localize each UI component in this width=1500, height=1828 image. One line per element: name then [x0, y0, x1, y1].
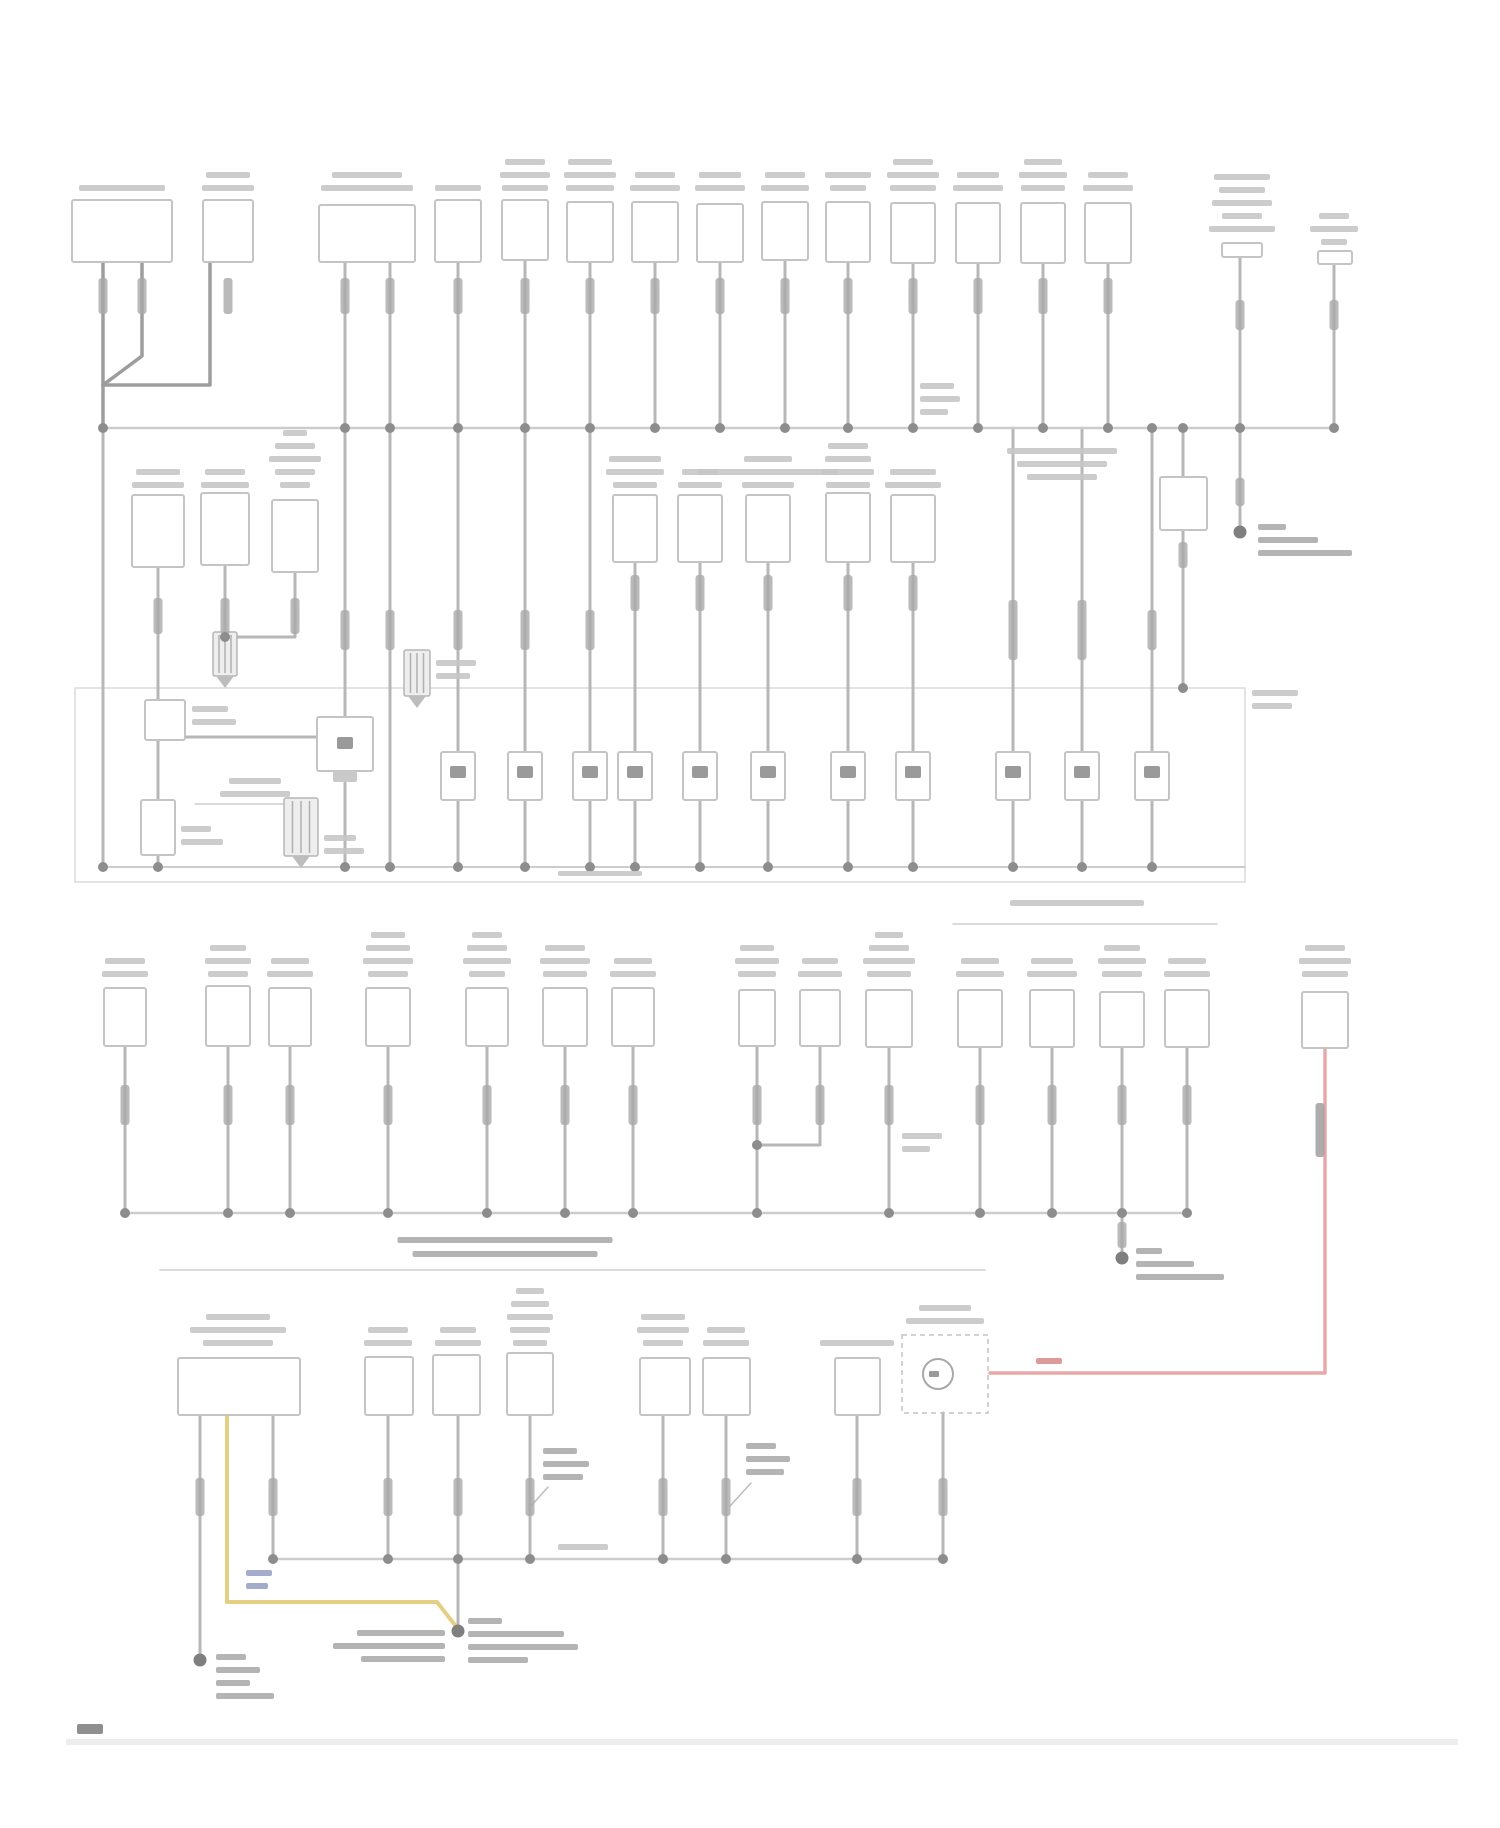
label-text-52-line-2 — [1136, 1274, 1224, 1280]
label-text-4-line-0 — [505, 159, 545, 165]
label-text-8-line-0 — [765, 172, 805, 178]
label-text-46-line-1 — [1098, 958, 1146, 964]
connector-pin-dot-7 — [905, 766, 921, 778]
label-text-60-line-0 — [919, 1305, 971, 1311]
label-text-2-line-1 — [321, 185, 413, 191]
connector-pin-dot-6 — [840, 766, 856, 778]
junction-dot-36 — [223, 1208, 233, 1218]
label-text-56-line-0 — [516, 1288, 544, 1294]
label-text-2-line-0 — [332, 172, 402, 178]
label-text-41-line-1 — [735, 958, 779, 964]
component-box-3 — [435, 200, 481, 262]
junction-dot-47 — [1182, 1208, 1192, 1218]
component-box-38 — [1030, 990, 1074, 1047]
label-text-65-line-0 — [216, 1654, 246, 1660]
junction-dot-3 — [453, 423, 463, 433]
red-ground-wire — [990, 1048, 1325, 1373]
label-text-42-line-0 — [802, 958, 838, 964]
label-text-66-line-1 — [333, 1643, 445, 1649]
label-text-37-line-2 — [363, 958, 413, 964]
component-box-8 — [762, 202, 808, 260]
wire-connector-stub-24 — [1009, 600, 1018, 660]
junction-dot-18 — [220, 632, 230, 642]
wire-connector-stub-31 — [696, 575, 705, 611]
ground-point-dot-2 — [194, 1654, 207, 1667]
label-text-37-line-3 — [368, 971, 408, 977]
wire-connector-stub-18 — [1236, 478, 1245, 506]
connector-pin-dot-8 — [1005, 766, 1021, 778]
wire-connector-stub-46 — [976, 1085, 985, 1125]
label-text-55-line-1 — [435, 1340, 481, 1346]
label-text-5-line-1 — [564, 172, 616, 178]
label-text-67-line-1 — [468, 1631, 564, 1637]
label-text-11-line-0 — [957, 172, 999, 178]
label-text-40-line-0 — [614, 958, 652, 964]
component-box-46 — [640, 1358, 690, 1415]
label-text-39-line-2 — [543, 971, 587, 977]
component-box-48 — [835, 1358, 880, 1415]
label-text-52-line-1 — [1136, 1261, 1194, 1267]
label-text-19-line-1 — [606, 469, 664, 475]
junction-dot-23 — [453, 862, 463, 872]
component-box-7 — [697, 204, 743, 262]
wire-connector-stub-6 — [521, 278, 530, 314]
label-text-41-line-0 — [740, 945, 774, 951]
junction-dot-26 — [630, 862, 640, 872]
junction-dot-43 — [884, 1208, 894, 1218]
junction-dot-45 — [1047, 1208, 1057, 1218]
label-text-23-line-1 — [885, 482, 941, 488]
component-box-14 — [1222, 243, 1262, 257]
label-text-58-line-0 — [707, 1327, 745, 1333]
label-text-68-line-2 — [1258, 550, 1352, 556]
wire-connector-stub-12 — [909, 278, 918, 314]
label-text-37-line-0 — [371, 932, 405, 938]
label-text-14-line-0 — [1214, 174, 1270, 180]
component-box-39 — [1100, 992, 1144, 1047]
component-box-24 — [1160, 477, 1207, 530]
label-text-38-line-3 — [469, 971, 505, 977]
label-text-62-line-0 — [746, 1443, 776, 1449]
label-text-41-line-2 — [738, 971, 776, 977]
label-text-7-line-0 — [699, 172, 741, 178]
junction-dot-41 — [628, 1208, 638, 1218]
label-text-35-line-1 — [205, 958, 251, 964]
label-text-33-line-0 — [1010, 900, 1144, 906]
label-text-63-line-0 — [558, 1544, 608, 1550]
label-text-34-line-0 — [105, 958, 145, 964]
junction-dot-11 — [973, 423, 983, 433]
connector-pin-dot-3 — [627, 766, 643, 778]
label-text-61-line-1 — [543, 1461, 589, 1467]
component-box-20 — [678, 495, 722, 562]
component-box-6 — [632, 202, 678, 262]
label-text-4-line-2 — [502, 185, 548, 191]
junction-dot-32 — [1077, 862, 1087, 872]
junction-dot-19 — [98, 862, 108, 872]
label-text-16-line-1 — [132, 482, 184, 488]
label-text-11-line-1 — [953, 185, 1003, 191]
junction-dot-7 — [715, 423, 725, 433]
wire-connector-stub-37 — [224, 1085, 233, 1125]
label-text-64-line-1 — [246, 1583, 268, 1589]
wire-connector-stub-56 — [659, 1478, 668, 1516]
junction-dot-29 — [843, 862, 853, 872]
junction-dot-48 — [752, 1140, 762, 1150]
label-text-53-line-2 — [203, 1340, 273, 1346]
junction-dot-9 — [843, 423, 853, 433]
wire-connector-stub-55 — [526, 1478, 535, 1516]
label-text-14-line-4 — [1209, 226, 1275, 232]
junction-dot-40 — [560, 1208, 570, 1218]
junction-dot-42 — [752, 1208, 762, 1218]
wire-connector-stub-13 — [974, 278, 983, 314]
label-text-56-line-3 — [510, 1327, 550, 1333]
label-text-25-line-1 — [920, 396, 960, 402]
label-text-56-line-2 — [507, 1314, 553, 1320]
component-box-9 — [826, 202, 870, 262]
label-text-21-line-0 — [744, 456, 792, 462]
component-box-37 — [958, 990, 1002, 1047]
junction-dot-30 — [908, 862, 918, 872]
wire-connector-stub-25 — [1078, 600, 1087, 660]
wire-connector-stub-21 — [454, 610, 463, 650]
junction-dot-10 — [908, 423, 918, 433]
junction-dot-17 — [1329, 423, 1339, 433]
label-text-5-line-2 — [566, 185, 614, 191]
label-text-67-line-3 — [468, 1657, 528, 1663]
label-text-14-line-2 — [1212, 200, 1272, 206]
wire-connector-stub-52 — [269, 1478, 278, 1516]
wire-1 — [103, 262, 142, 385]
connector-pin-dot-5 — [760, 766, 776, 778]
junction-dot-49 — [268, 1554, 278, 1564]
label-text-67-line-2 — [468, 1644, 578, 1650]
label-text-32-line-0 — [229, 778, 281, 784]
component-box-12 — [1021, 203, 1065, 263]
label-text-34-line-1 — [102, 971, 148, 977]
wire-connector-stub-0 — [99, 278, 108, 314]
label-text-18-line-2 — [269, 456, 321, 462]
label-text-14-line-1 — [1219, 187, 1265, 193]
label-text-53-line-1 — [190, 1327, 286, 1333]
component-box-27 — [104, 988, 146, 1046]
junction-dot-8 — [780, 423, 790, 433]
label-text-6-line-1 — [630, 185, 680, 191]
wire-connector-stub-41 — [561, 1085, 570, 1125]
label-text-59-line-0 — [820, 1340, 894, 1346]
junction-dot-55 — [852, 1554, 862, 1564]
connector-pin-dot-2 — [582, 766, 598, 778]
component-box-1 — [203, 200, 253, 262]
wire-connector-stub-29 — [291, 598, 300, 634]
junction-dot-28 — [763, 862, 773, 872]
label-text-37-line-1 — [366, 945, 410, 951]
label-text-9-line-1 — [830, 185, 866, 191]
label-text-66-line-2 — [361, 1656, 445, 1662]
wire-connector-stub-32 — [764, 575, 773, 611]
wire-connector-stub-22 — [521, 610, 530, 650]
label-text-16-line-0 — [136, 469, 180, 475]
label-text-4-line-1 — [500, 172, 550, 178]
label-text-28-line-1 — [181, 839, 223, 845]
junction-dot-35 — [120, 1208, 130, 1218]
wire-connector-stub-47 — [1048, 1085, 1057, 1125]
label-text-1-line-1 — [202, 185, 254, 191]
wire-30 — [225, 572, 295, 637]
component-box-47 — [703, 1358, 750, 1415]
wire-connector-stub-14 — [1039, 278, 1048, 314]
connector-pin-dot-9 — [1074, 766, 1090, 778]
label-text-62-line-2 — [746, 1469, 784, 1475]
junction-dot-44 — [975, 1208, 985, 1218]
connector-pin-dot-1 — [517, 766, 533, 778]
label-text-62-line-1 — [746, 1456, 790, 1462]
label-text-51-line-0 — [413, 1251, 598, 1257]
junction-dot-33 — [1147, 862, 1157, 872]
wire-connector-stub-50 — [1118, 1222, 1127, 1248]
junction-dot-37 — [285, 1208, 295, 1218]
junction-dot-22 — [385, 862, 395, 872]
label-text-14-line-3 — [1222, 213, 1262, 219]
label-text-45-line-0 — [1031, 958, 1073, 964]
label-text-49-line-0 — [902, 1133, 942, 1139]
wire-connector-stub-4 — [386, 278, 395, 314]
label-text-69-line-0 — [1036, 1358, 1062, 1364]
wire-connector-stub-3 — [341, 278, 350, 314]
wire-connector-stub-44 — [816, 1085, 825, 1125]
wire-connector-stub-27 — [154, 598, 163, 634]
label-text-53-line-0 — [206, 1314, 270, 1320]
component-box-35 — [800, 990, 840, 1046]
label-text-56-line-4 — [513, 1340, 547, 1346]
label-text-54-line-1 — [364, 1340, 412, 1346]
component-box-43 — [365, 1357, 413, 1415]
red-wire-connector-stub — [1316, 1103, 1325, 1157]
connector-circle-pin — [929, 1371, 939, 1377]
wire-connector-stub-7 — [586, 278, 595, 314]
wiring-diagram-page — [0, 0, 1500, 1828]
junction-dot-14 — [1147, 423, 1157, 433]
component-box-18 — [272, 500, 318, 572]
label-text-43-line-3 — [867, 971, 911, 977]
wire-connector-stub-43 — [753, 1085, 762, 1125]
wire-connector-stub-20 — [386, 610, 395, 650]
label-text-48-line-2 — [1302, 971, 1348, 977]
label-text-20-line-1 — [678, 482, 722, 488]
junction-dot-54 — [721, 1554, 731, 1564]
label-text-17-line-0 — [205, 469, 245, 475]
component-box-4 — [502, 200, 548, 260]
wire-connector-stub-8 — [651, 278, 660, 314]
label-text-1-line-0 — [206, 172, 250, 178]
junction-dot-12 — [1038, 423, 1048, 433]
label-text-10-line-0 — [893, 159, 933, 165]
label-text-18-line-3 — [275, 469, 315, 475]
component-box-32 — [543, 988, 587, 1046]
label-text-10-line-2 — [890, 185, 936, 191]
wire-connector-stub-57 — [722, 1478, 731, 1516]
ground-distribution-diagram — [0, 0, 1500, 1828]
label-text-57-line-0 — [641, 1314, 685, 1320]
component-box-26 — [141, 800, 175, 855]
component-box-10 — [891, 203, 935, 263]
component-box-29 — [269, 988, 311, 1046]
footer-rule-band — [66, 1739, 1458, 1745]
ground-point-dot-3 — [452, 1625, 465, 1638]
junction-dot-51 — [453, 1554, 463, 1564]
label-text-8-line-1 — [761, 185, 809, 191]
wire-connector-stub-1 — [138, 278, 147, 314]
wire-connector-stub-36 — [121, 1085, 130, 1125]
label-text-57-line-1 — [637, 1327, 689, 1333]
wire-connector-stub-33 — [844, 575, 853, 611]
label-text-39-line-0 — [545, 945, 585, 951]
label-text-56-line-1 — [511, 1301, 549, 1307]
label-text-30-line-0 — [436, 660, 476, 666]
label-text-64-line-0 — [246, 1570, 272, 1576]
component-box-40 — [1165, 990, 1209, 1047]
label-text-65-line-1 — [216, 1667, 260, 1673]
component-box-41 — [1302, 992, 1348, 1048]
label-text-38-line-2 — [463, 958, 511, 964]
label-text-26-line-0 — [1252, 690, 1298, 696]
wire-connector-stub-16 — [1236, 300, 1245, 330]
label-text-12-line-2 — [1021, 185, 1065, 191]
label-text-61-line-0 — [543, 1448, 577, 1454]
component-box-17 — [201, 493, 249, 565]
label-text-0-line-0 — [79, 185, 165, 191]
connector-pin-dot-11 — [337, 737, 353, 749]
label-text-36-line-1 — [267, 971, 313, 977]
label-text-22-line-1 — [825, 456, 871, 462]
connector-tail-11 — [333, 771, 357, 782]
component-box-2 — [319, 205, 415, 262]
wire-58 — [757, 1046, 820, 1145]
label-text-47-line-1 — [1164, 971, 1210, 977]
label-text-68-line-0 — [1258, 524, 1286, 530]
wire-connector-stub-38 — [286, 1085, 295, 1125]
label-text-65-line-3 — [216, 1693, 274, 1699]
label-text-21-line-2 — [742, 482, 794, 488]
label-text-22-line-2 — [822, 469, 874, 475]
component-box-33 — [612, 988, 654, 1046]
label-text-18-line-4 — [280, 482, 310, 488]
yellow-ground-wire — [227, 1415, 458, 1629]
junction-dot-4 — [520, 423, 530, 433]
label-text-68-line-1 — [1258, 537, 1318, 543]
wire-connector-stub-11 — [844, 278, 853, 314]
label-text-22-line-0 — [828, 443, 868, 449]
wire-connector-stub-49 — [1183, 1085, 1192, 1125]
wire-connector-stub-59 — [939, 1478, 948, 1516]
wire-connector-stub-19 — [341, 610, 350, 650]
label-text-42-line-1 — [798, 971, 842, 977]
component-box-45 — [507, 1353, 553, 1415]
wire-connector-stub-2 — [224, 278, 233, 314]
junction-dot-13 — [1103, 423, 1113, 433]
component-box-28 — [206, 986, 250, 1046]
label-text-30-line-1 — [436, 673, 470, 679]
component-box-15 — [1318, 251, 1352, 264]
label-text-55-line-0 — [440, 1327, 476, 1333]
wire-connector-stub-39 — [384, 1085, 393, 1125]
label-text-44-line-1 — [956, 971, 1004, 977]
wire-connector-stub-15 — [1104, 278, 1113, 314]
label-text-3-line-0 — [435, 185, 481, 191]
junction-dot-6 — [650, 423, 660, 433]
wire-connector-stub-48 — [1118, 1085, 1127, 1125]
wire-connector-stub-10 — [781, 278, 790, 314]
wire-connector-stub-5 — [454, 278, 463, 314]
component-box-42 — [178, 1358, 300, 1415]
label-text-43-line-1 — [869, 945, 909, 951]
label-text-28-line-0 — [181, 826, 211, 832]
label-text-25-line-0 — [920, 383, 954, 389]
label-text-15-line-0 — [1319, 213, 1349, 219]
label-text-46-line-0 — [1104, 945, 1140, 951]
wire-2 — [103, 262, 210, 385]
label-text-38-line-0 — [472, 932, 502, 938]
connector-pin-dot-4 — [692, 766, 708, 778]
label-text-7-line-1 — [695, 185, 745, 191]
component-box-5 — [567, 202, 613, 262]
junction-dot-31 — [1008, 862, 1018, 872]
label-text-19-line-2 — [613, 482, 657, 488]
label-text-36-line-0 — [271, 958, 309, 964]
component-box-30 — [366, 988, 410, 1046]
label-text-24-line-0 — [1007, 448, 1117, 454]
label-text-38-line-1 — [467, 945, 507, 951]
label-text-15-line-1 — [1310, 226, 1358, 232]
wire-connector-stub-53 — [384, 1478, 393, 1516]
label-text-19-line-0 — [609, 456, 661, 462]
label-text-18-line-1 — [275, 443, 315, 449]
wire-connector-stub-58 — [853, 1478, 862, 1516]
component-box-31 — [466, 988, 508, 1046]
component-box-36 — [866, 990, 912, 1047]
ground-point-dot-0 — [1234, 526, 1247, 539]
junction-dot-50 — [383, 1554, 393, 1564]
label-text-25-line-2 — [920, 409, 948, 415]
junction-dot-5 — [585, 423, 595, 433]
component-box-19 — [613, 495, 657, 562]
label-text-22-line-3 — [826, 482, 870, 488]
wire-connector-stub-9 — [716, 278, 725, 314]
splice-tail-2 — [408, 696, 426, 708]
label-text-12-line-0 — [1024, 159, 1062, 165]
label-text-50-line-0 — [398, 1237, 613, 1243]
label-text-49-line-1 — [902, 1146, 930, 1152]
wire-connector-stub-42 — [629, 1085, 638, 1125]
label-text-21-line-1 — [698, 469, 838, 475]
wire-connector-stub-17 — [1330, 300, 1339, 330]
component-box-0 — [72, 200, 172, 262]
label-text-29-line-1 — [324, 848, 364, 854]
wire-connector-stub-45 — [885, 1085, 894, 1125]
label-text-15-line-2 — [1321, 239, 1347, 245]
component-box-44 — [433, 1355, 480, 1415]
junction-dot-56 — [938, 1554, 948, 1564]
label-text-24-line-1 — [1017, 461, 1107, 467]
component-box-21 — [746, 495, 790, 562]
label-text-24-line-2 — [1027, 474, 1097, 480]
ground-point-dot-1 — [1116, 1252, 1129, 1265]
label-text-6-line-0 — [635, 172, 675, 178]
wire-connector-stub-28 — [221, 598, 230, 634]
label-text-52-line-0 — [1136, 1248, 1162, 1254]
component-box-25 — [145, 700, 185, 740]
